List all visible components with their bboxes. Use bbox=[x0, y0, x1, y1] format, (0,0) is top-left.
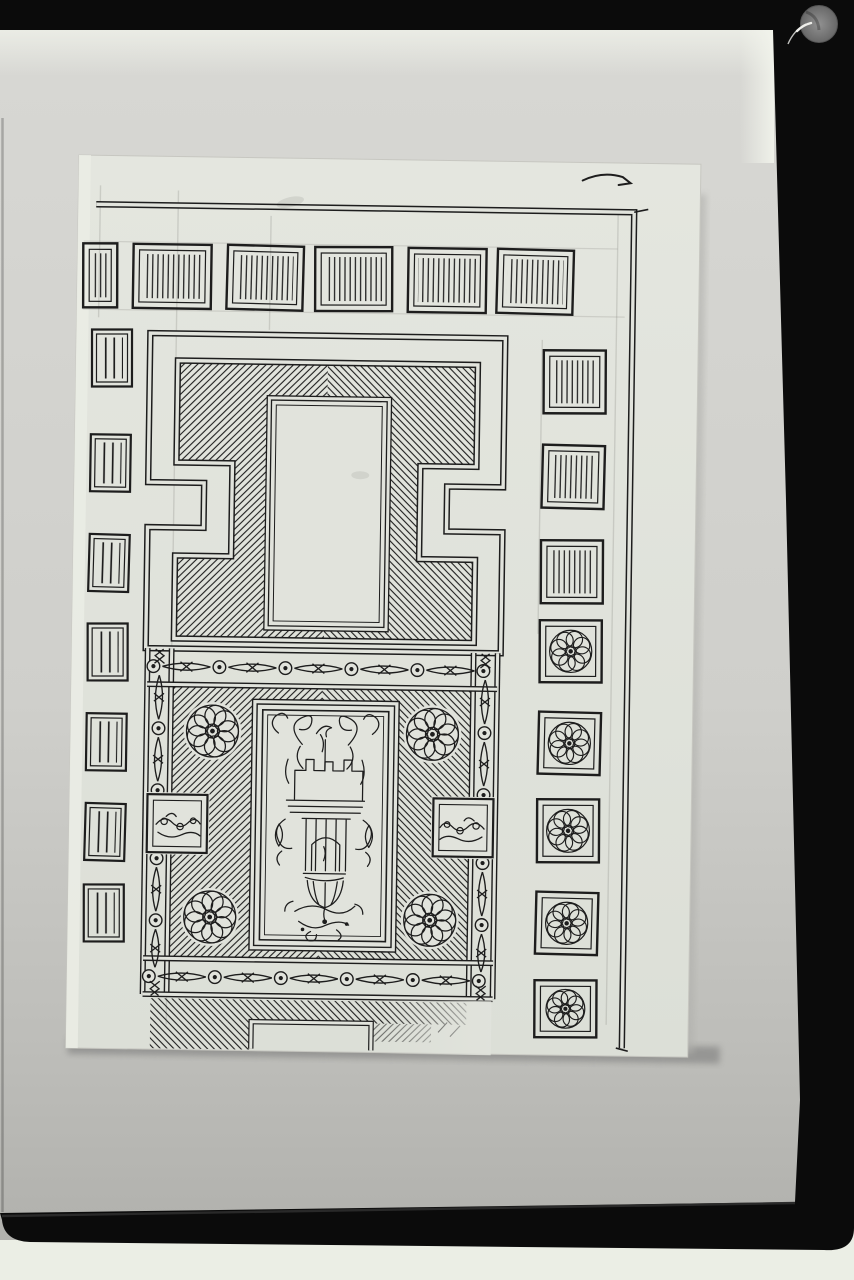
photograph bbox=[0, 0, 854, 1280]
drawing-sheet bbox=[66, 155, 701, 1058]
print-corner-curl-highlight bbox=[740, 28, 774, 163]
notch-flower-panel bbox=[431, 796, 496, 859]
notch-flower-panel bbox=[145, 792, 210, 855]
candelabra-panel bbox=[251, 702, 397, 950]
photo-scene bbox=[0, 0, 854, 1280]
blank-cartouche bbox=[266, 398, 389, 630]
print-top-highlight bbox=[0, 28, 775, 76]
